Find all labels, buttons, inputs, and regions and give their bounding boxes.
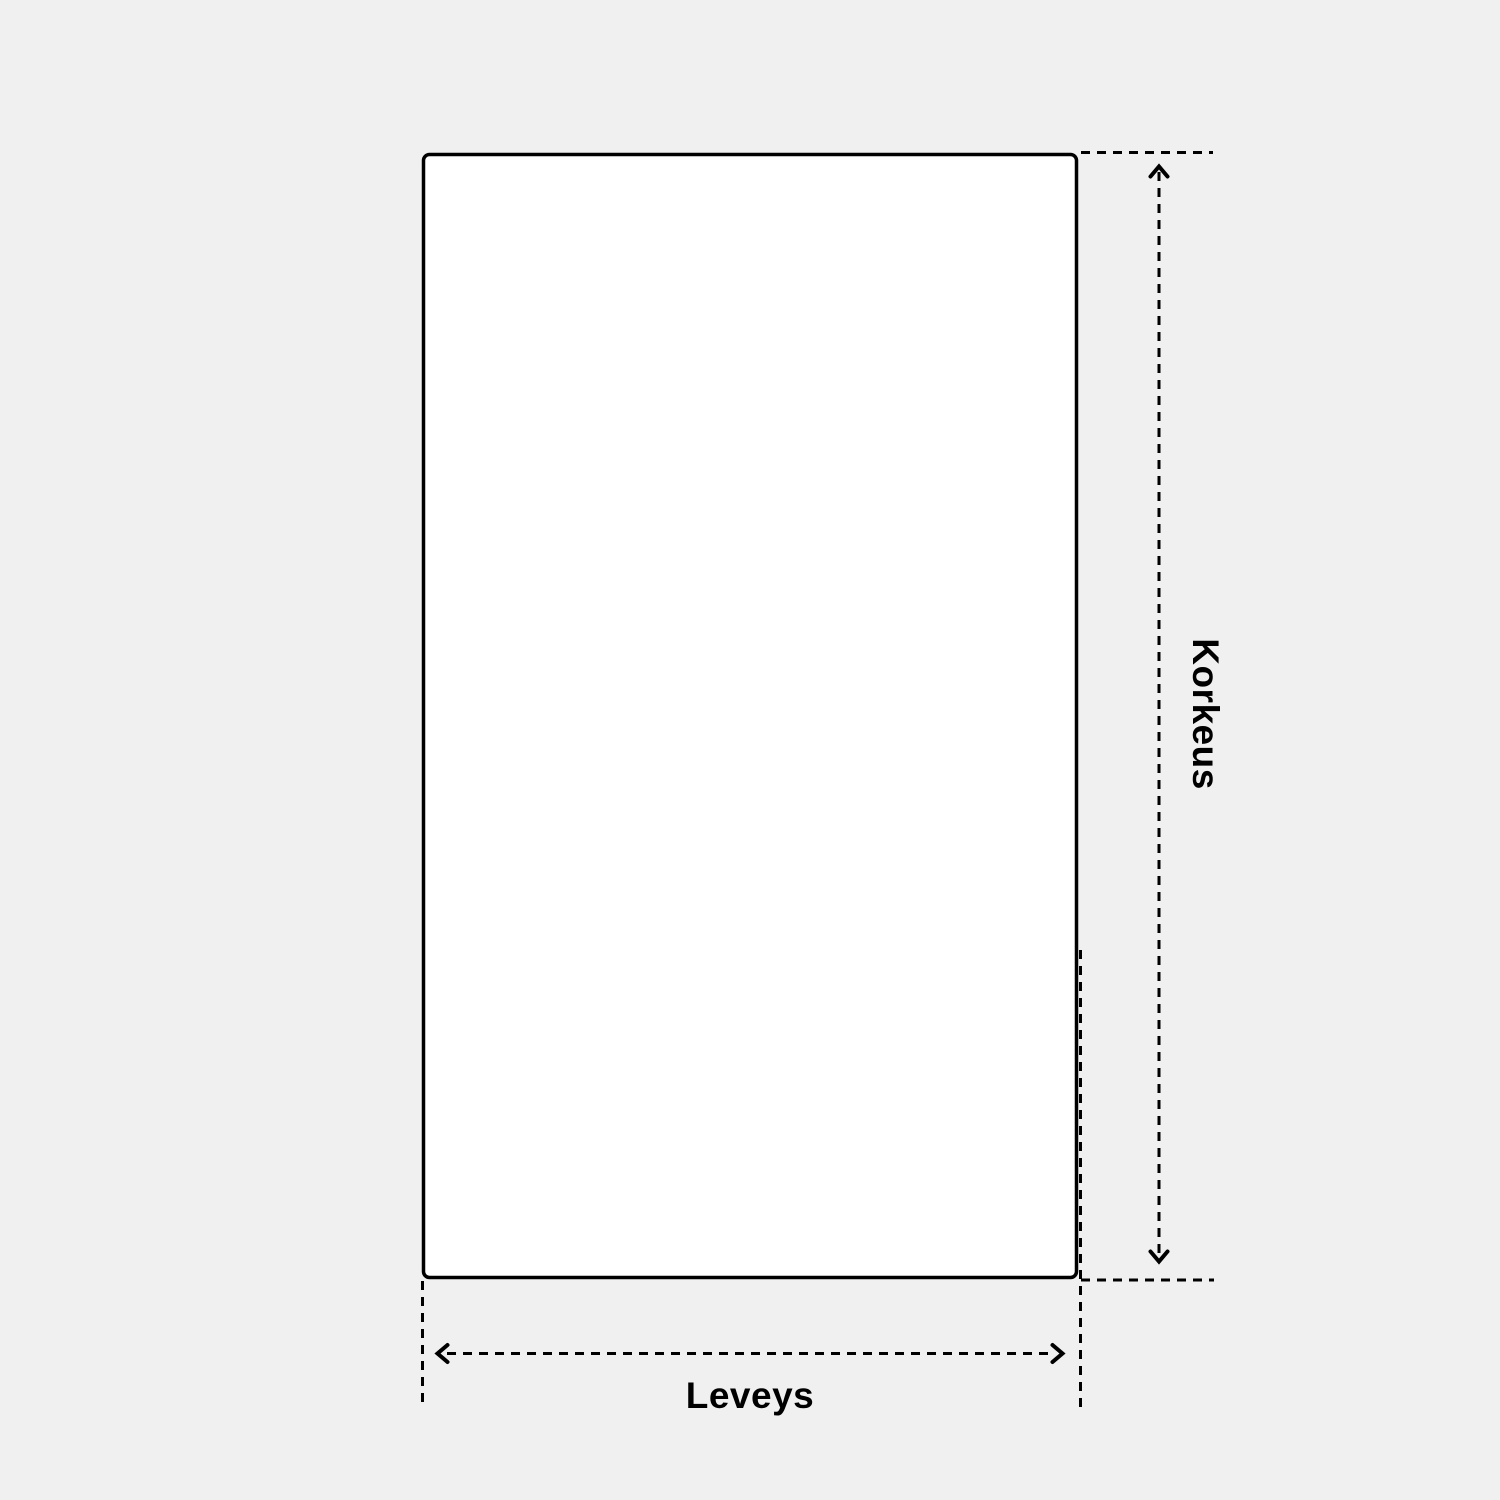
dimension-diagram: Korkeus Leveys xyxy=(0,0,1500,1500)
arrow-left-icon xyxy=(438,1345,448,1362)
height-label: Korkeus xyxy=(1184,638,1226,790)
arrow-right-icon xyxy=(1053,1345,1063,1362)
height-dimension-line xyxy=(1151,167,1168,1262)
width-dimension-line xyxy=(438,1345,1063,1362)
product-shape-rectangle xyxy=(424,155,1077,1278)
width-label: Leveys xyxy=(686,1375,815,1417)
diagram-canvas xyxy=(0,0,1500,1500)
